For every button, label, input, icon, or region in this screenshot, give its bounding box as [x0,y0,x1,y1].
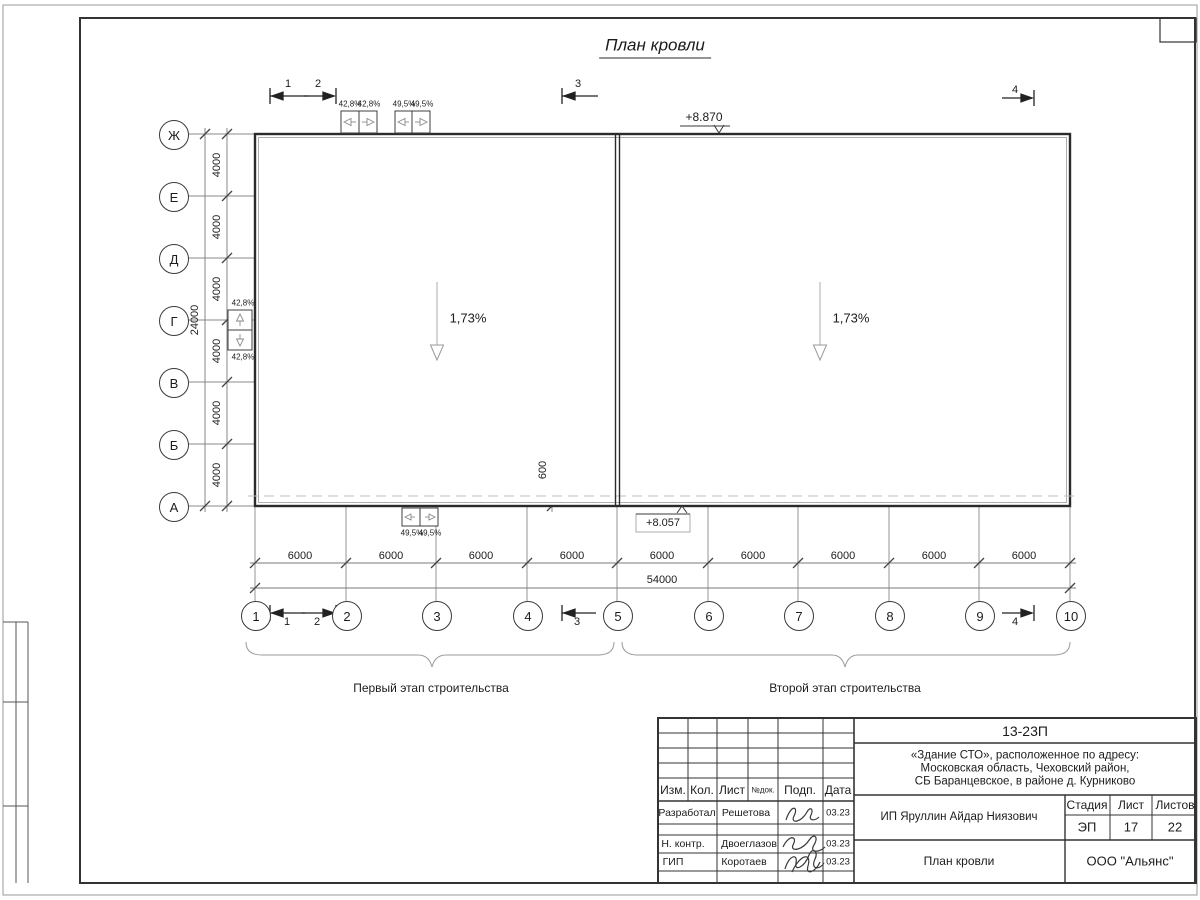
stage-braces [246,642,1070,667]
axis-col-3: 3 [422,601,452,631]
axis-col-10: 10 [1056,601,1086,631]
section-mark-1: 1 [285,78,291,90]
dim-4000: 4000 [211,401,223,425]
drain-label: 42,8% [232,353,255,362]
axis-row-label: Д [170,252,179,267]
axis-col-label: 6 [705,609,712,624]
stamp-name-developer: Решетова [722,807,770,819]
section-mark-2: 2 [314,616,320,628]
page-title: План кровли [599,36,711,59]
axis-col-label: 4 [524,609,531,624]
stamp-sheet-label: Лист [1118,798,1144,812]
section-mark-4: 4 [1012,616,1018,628]
signature-gip [785,851,824,872]
stamp-col-kol: Кол. [690,783,714,797]
dim-6000: 6000 [741,550,765,562]
axis-row-a: А [159,492,189,522]
stamp-stage-label: Стадия [1067,798,1108,812]
section-mark-3: 3 [574,616,580,628]
stamp-date-ncontrol: 03.23 [826,839,850,850]
axis-col-label: 9 [976,609,983,624]
axis-col-7: 7 [784,601,814,631]
stamp-project-line3: СБ Баранцевское, в районе д. Курниково [915,776,1135,789]
stamp-role-developer: Разработал [658,807,715,819]
stamp-sheets-value: 22 [1168,820,1182,835]
axis-row-e: Е [159,182,189,212]
dim-6000: 6000 [379,550,403,562]
axis-col-label: 8 [886,609,893,624]
elevation-top: +8.870 [685,110,722,124]
stamp-sheets-label: Листов [1156,798,1195,812]
dim-6000: 6000 [1012,550,1036,562]
elevation-bottom: +8.057 [646,517,680,529]
stamp-stage-value: ЭП [1078,820,1097,835]
stamp-project-line2: Московская область, Чеховский район, [921,763,1130,776]
drain-label: 42,8% [232,299,255,308]
dim-6000: 6000 [922,550,946,562]
section-mark-1: 1 [284,616,290,628]
building-outline [248,134,1078,506]
stamp-company: ООО "Альянс" [1087,854,1174,869]
stage-1-label: Первый этап строительства [353,681,509,695]
axis-col-9: 9 [965,601,995,631]
stamp-role-gip: ГИП [663,856,684,868]
stamp-name-gip: Коротаев [721,856,766,868]
axis-col-1: 1 [241,601,271,631]
axis-row-label: А [170,500,179,515]
stamp-date-developer: 03.23 [826,808,850,819]
stamp-sheet-value: 17 [1124,820,1138,835]
section-mark-3: 3 [575,78,581,90]
axis-row-label: Ж [168,128,180,143]
axis-col-label: 5 [614,609,621,624]
axis-row-g: Г [159,306,189,336]
drawing-sheet: План кровли Ж Е Д Г В Б А 1 2 3 4 5 6 7 … [0,0,1200,900]
dim-6000: 6000 [288,550,312,562]
drain-label: 49,5% [419,529,442,538]
stamp-name-ncontrol: Двоеглазов [721,838,777,850]
axis-col-label: 3 [433,609,440,624]
stamp-col-podp: Подп. [784,783,816,797]
section-mark-2: 2 [315,78,321,90]
stamp-drawing-name: План кровли [924,854,995,868]
stamp-col-izm: Изм. [660,783,686,797]
dim-4000: 4000 [211,277,223,301]
dim-6000: 6000 [650,550,674,562]
axis-row-zh: Ж [159,120,189,150]
stamp-col-list: Лист [719,783,745,797]
slope-label-right: 1,73% [833,311,870,326]
dim-4000: 4000 [211,215,223,239]
axis-col-5: 5 [603,601,633,631]
signature-ncontrol [783,836,825,851]
stamp-date-gip: 03.23 [826,857,850,868]
axis-row-b: Б [159,430,189,460]
axis-col-4: 4 [513,601,543,631]
axis-row-label: В [170,376,179,391]
axis-col-8: 8 [875,601,905,631]
stamp-role-ncontrol: Н. контр. [661,838,704,850]
axis-row-label: Е [170,190,179,205]
axis-col-label: 2 [343,609,350,624]
stamp-project-line1: «Здание СТО», расположенное по адресу: [911,750,1139,763]
dim-6000: 6000 [831,550,855,562]
axis-col-2: 2 [332,601,362,631]
dim-4000: 4000 [211,463,223,487]
signature-developer [786,808,819,821]
stamp-col-ndoc: №док. [751,786,774,795]
axis-col-label: 7 [795,609,802,624]
axis-row-label: Г [170,314,177,329]
axis-col-label: 1 [252,609,259,624]
signatures [783,808,825,872]
axis-row-label: Б [170,438,179,453]
dim-6000: 6000 [469,550,493,562]
drain-label: 42,8% [358,100,381,109]
axis-row-v: В [159,368,189,398]
axis-col-6: 6 [694,601,724,631]
stage-2-label: Второй этап строительства [769,681,921,695]
dim-4000: 4000 [211,339,223,363]
dim-6000: 6000 [560,550,584,562]
dim-4000: 4000 [211,153,223,177]
axis-col-label: 10 [1064,609,1078,624]
axis-row-d: Д [159,244,189,274]
dim-600: 600 [537,461,549,479]
stamp-col-data: Дата [825,783,852,797]
dim-24000: 24000 [189,305,201,336]
stamp-doc-number: 13-23П [1002,723,1048,739]
slope-label-left: 1,73% [450,311,487,326]
dim-54000: 54000 [647,574,678,586]
drain-label: 49,5% [411,100,434,109]
stamp-client: ИП Яруллин Айдар Ниязович [881,811,1038,823]
section-mark-4: 4 [1012,84,1018,96]
